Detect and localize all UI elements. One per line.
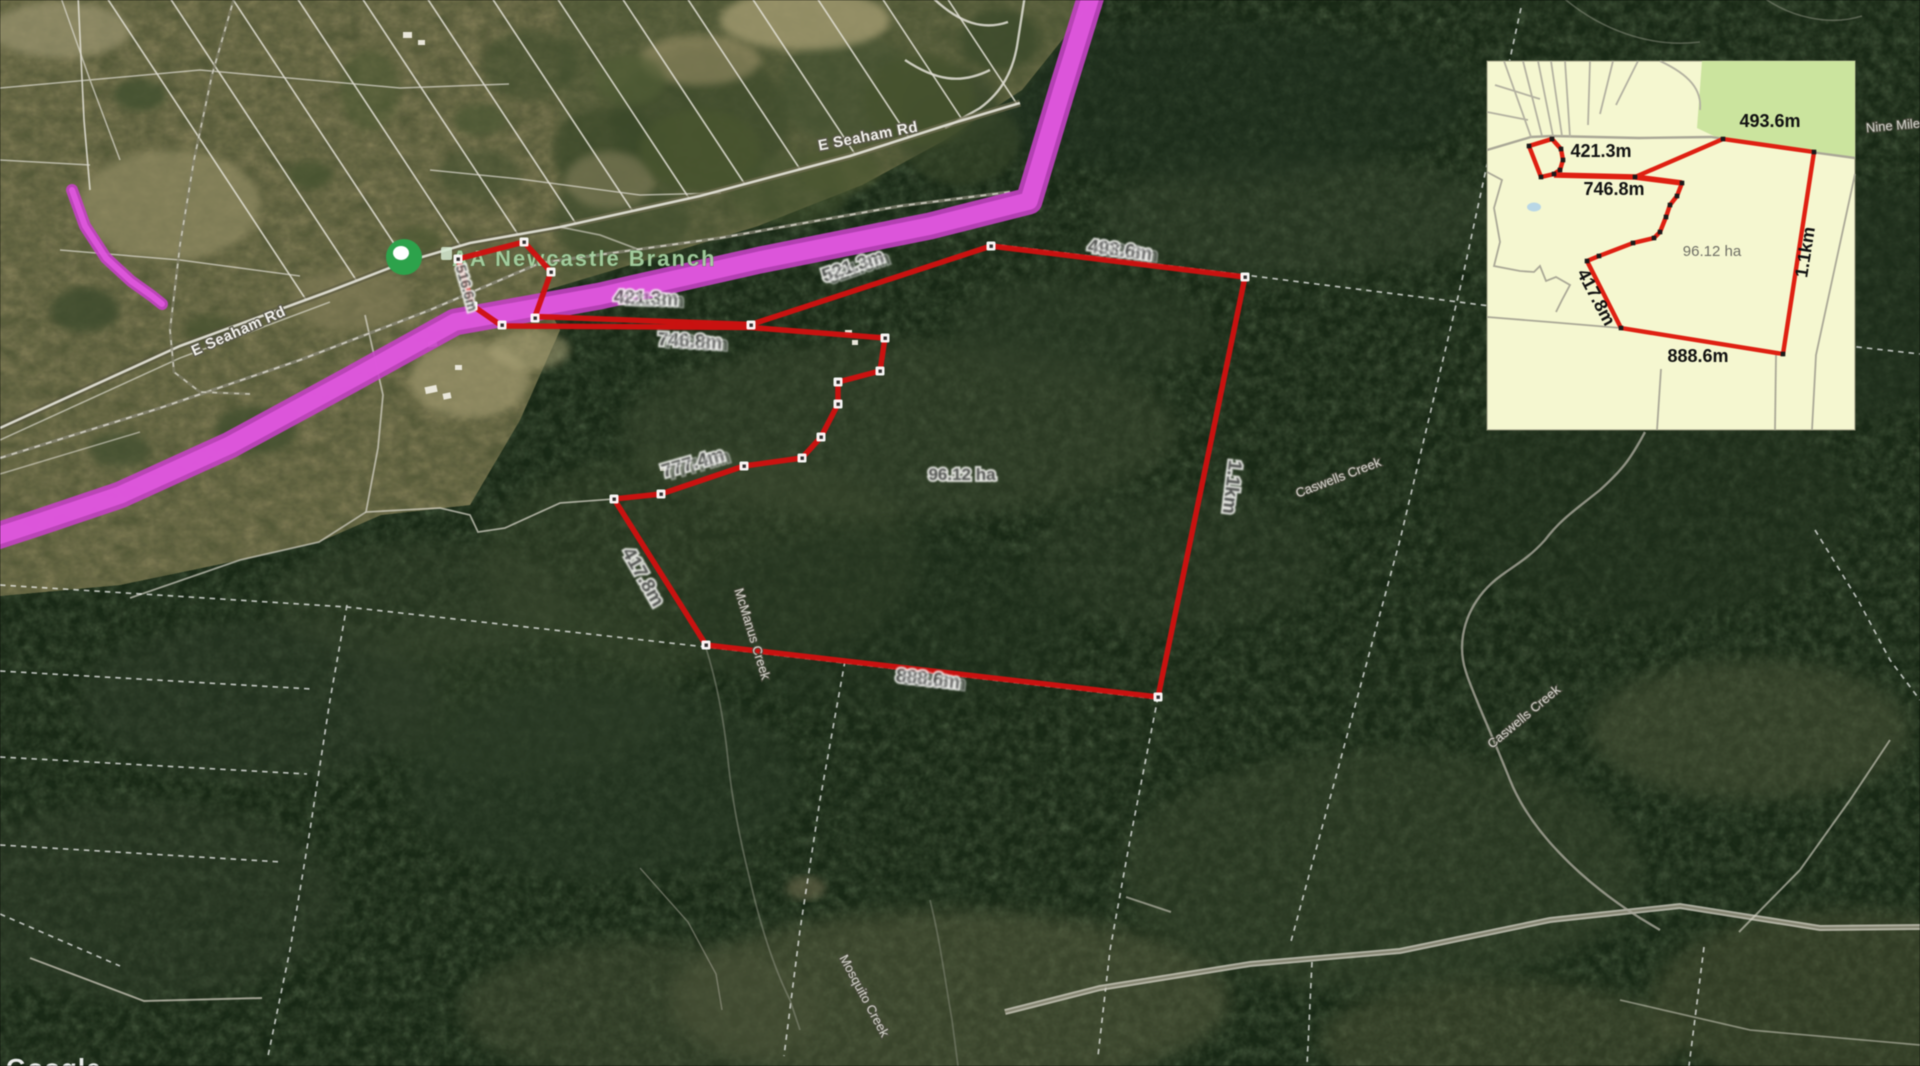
svg-text:Google: Google xyxy=(6,1053,102,1066)
svg-text:421.3m: 421.3m xyxy=(619,289,684,312)
svg-text:888.6m: 888.6m xyxy=(1667,346,1728,366)
svg-text:746.8m: 746.8m xyxy=(1583,179,1644,199)
svg-text:493.6m: 493.6m xyxy=(1739,111,1800,131)
svg-text:746.8m: 746.8m xyxy=(663,331,728,355)
svg-text:96.12 ha: 96.12 ha xyxy=(1683,243,1742,260)
svg-text:96.12 ha: 96.12 ha xyxy=(928,465,996,484)
svg-text:421.3m: 421.3m xyxy=(1570,141,1631,161)
